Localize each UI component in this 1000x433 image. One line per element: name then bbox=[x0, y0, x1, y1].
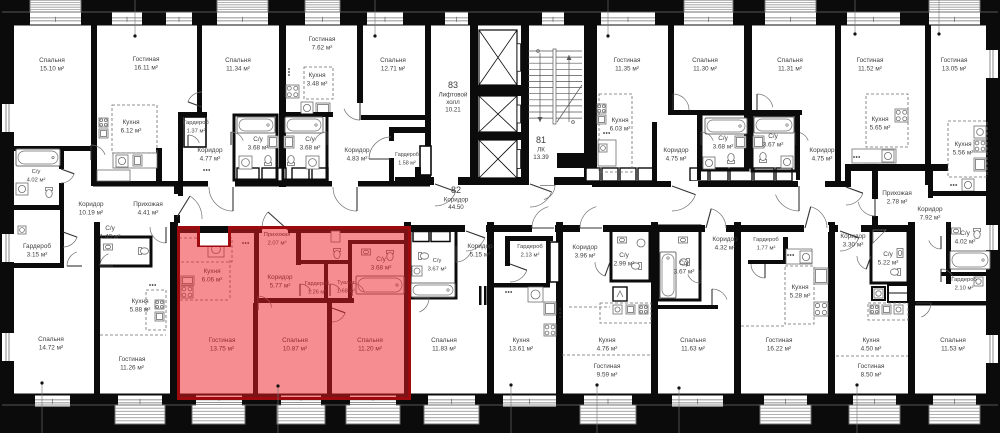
svg-text:1.77 м²: 1.77 м² bbox=[757, 246, 776, 252]
svg-text:1.58 м²: 1.58 м² bbox=[398, 161, 416, 167]
svg-text:Гостиная: Гостиная bbox=[858, 363, 885, 370]
svg-text:83: 83 bbox=[448, 80, 458, 90]
svg-text:Кухня: Кухня bbox=[871, 116, 889, 123]
svg-text:1.37 м²: 1.37 м² bbox=[187, 129, 206, 135]
svg-text:Коридор: Коридор bbox=[344, 147, 370, 154]
svg-text:4.76 м²: 4.76 м² bbox=[597, 346, 618, 353]
svg-text:С/у: С/у bbox=[679, 260, 689, 267]
svg-text:Кухня: Кухня bbox=[122, 119, 140, 126]
svg-text:13.61 м²: 13.61 м² bbox=[509, 346, 533, 353]
svg-text:6.12 м²: 6.12 м² bbox=[121, 128, 142, 135]
svg-text:Коридор: Коридор bbox=[467, 243, 493, 250]
svg-text:11.30 м²: 11.30 м² bbox=[693, 66, 717, 73]
svg-text:11.52 м²: 11.52 м² bbox=[858, 66, 882, 73]
svg-text:Лифтовой: Лифтовой bbox=[439, 92, 468, 99]
svg-text:13.39: 13.39 bbox=[533, 154, 549, 161]
svg-text:3.48 м²: 3.48 м² bbox=[307, 81, 328, 88]
svg-text:3.67 м²: 3.67 м² bbox=[763, 142, 784, 149]
svg-text:С/у: С/у bbox=[433, 258, 442, 264]
svg-text:11.26 м²: 11.26 м² bbox=[120, 365, 144, 372]
svg-text:Спальня: Спальня bbox=[940, 337, 966, 344]
svg-text:Коридор: Коридор bbox=[572, 244, 598, 251]
svg-text:4.32 м²: 4.32 м² bbox=[715, 245, 736, 252]
svg-text:4.77 м²: 4.77 м² bbox=[200, 156, 221, 163]
svg-text:Спальня: Спальня bbox=[680, 337, 706, 344]
svg-text:81: 81 bbox=[536, 135, 546, 145]
svg-text:Гостиная: Гостиная bbox=[119, 356, 146, 363]
svg-text:Кухня: Кухня bbox=[131, 298, 149, 305]
svg-text:ЛК: ЛК bbox=[537, 147, 545, 154]
svg-text:Гардероб: Гардероб bbox=[517, 244, 543, 250]
svg-text:9.59 м²: 9.59 м² bbox=[597, 372, 618, 379]
svg-text:12.71 м²: 12.71 м² bbox=[381, 66, 405, 73]
svg-text:2.13 м²: 2.13 м² bbox=[521, 253, 540, 259]
svg-text:5.56 м²: 5.56 м² bbox=[953, 150, 974, 157]
svg-text:4.75 м²: 4.75 м² bbox=[812, 156, 833, 163]
svg-text:Спальня: Спальня bbox=[380, 57, 406, 64]
svg-text:3.67 м²: 3.67 м² bbox=[674, 269, 695, 276]
svg-text:Коридор: Коридор bbox=[663, 147, 689, 154]
svg-text:14.72 м²: 14.72 м² bbox=[39, 345, 63, 352]
svg-text:Коридор: Коридор bbox=[78, 201, 104, 208]
svg-text:3.68 м²: 3.68 м² bbox=[300, 145, 321, 152]
svg-text:5.65 м²: 5.65 м² bbox=[870, 125, 891, 132]
svg-text:Гардероб: Гардероб bbox=[183, 120, 209, 126]
svg-text:3.68 м²: 3.68 м² bbox=[248, 145, 269, 152]
svg-text:Гостиная: Гостиная bbox=[309, 36, 336, 43]
svg-text:С/у: С/у bbox=[960, 230, 970, 237]
svg-text:С/у: С/у bbox=[619, 252, 629, 259]
svg-text:4.02 м²: 4.02 м² bbox=[955, 239, 976, 246]
svg-text:Спальня: Спальня bbox=[431, 337, 457, 344]
svg-text:Гостиная: Гостиная bbox=[766, 337, 793, 344]
svg-text:Гардероб: Гардероб bbox=[23, 242, 51, 250]
svg-text:7.92 м²: 7.92 м² bbox=[920, 215, 941, 222]
svg-text:4.02 м²: 4.02 м² bbox=[27, 178, 46, 184]
svg-text:3.68 м²: 3.68 м² bbox=[713, 144, 734, 151]
svg-text:3.30 м²: 3.30 м² bbox=[843, 242, 864, 249]
svg-text:Гостиная: Гостиная bbox=[133, 56, 160, 63]
svg-text:Кухня: Кухня bbox=[308, 72, 326, 79]
svg-text:2.99 м²: 2.99 м² bbox=[614, 261, 635, 268]
svg-text:Кухня: Кухня bbox=[791, 284, 809, 291]
svg-text:11.53 м²: 11.53 м² bbox=[941, 346, 965, 353]
svg-text:Прихожая: Прихожая bbox=[882, 190, 912, 197]
svg-text:10.19 м²: 10.19 м² bbox=[79, 210, 103, 217]
svg-text:3.96 м²: 3.96 м² bbox=[575, 253, 596, 260]
svg-text:11.63 м²: 11.63 м² bbox=[681, 346, 705, 353]
svg-text:Прихожая: Прихожая bbox=[133, 201, 163, 208]
svg-text:Гостиная: Гостиная bbox=[614, 57, 641, 64]
svg-text:11.34 м²: 11.34 м² bbox=[226, 66, 250, 73]
svg-text:5.15 м²: 5.15 м² bbox=[470, 252, 491, 259]
svg-text:Спальня: Спальня bbox=[692, 57, 718, 64]
svg-text:Гостиная: Гостиная bbox=[941, 57, 968, 64]
svg-text:Коридор: Коридор bbox=[712, 236, 738, 243]
svg-text:С/у: С/у bbox=[305, 136, 315, 143]
svg-text:2.78 м²: 2.78 м² bbox=[887, 199, 908, 206]
svg-text:Кухня: Кухня bbox=[954, 141, 972, 148]
svg-text:Коридор: Коридор bbox=[809, 147, 835, 154]
svg-text:7.62 м²: 7.62 м² bbox=[312, 45, 333, 52]
svg-text:6.03 м²: 6.03 м² bbox=[610, 126, 631, 133]
svg-text:11.31 м²: 11.31 м² bbox=[778, 66, 802, 73]
svg-text:Гардероб: Гардероб bbox=[951, 277, 977, 283]
svg-text:44.50: 44.50 bbox=[448, 204, 464, 211]
svg-text:Спальня: Спальня bbox=[777, 57, 803, 64]
svg-text:С/у: С/у bbox=[718, 135, 728, 142]
svg-text:4.50 м²: 4.50 м² bbox=[861, 346, 882, 353]
svg-text:Коридор: Коридор bbox=[840, 233, 866, 240]
svg-text:3.15 м²: 3.15 м² bbox=[27, 252, 48, 259]
svg-text:2.10 м²: 2.10 м² bbox=[955, 286, 974, 292]
svg-text:5.28 м²: 5.28 м² bbox=[790, 293, 811, 300]
svg-text:Спальня: Спальня bbox=[38, 336, 64, 343]
svg-text:С/у: С/у bbox=[32, 169, 41, 175]
svg-text:15.10 м²: 15.10 м² bbox=[40, 66, 64, 73]
svg-text:4.75 м²: 4.75 м² bbox=[666, 156, 687, 163]
svg-text:Коридор: Коридор bbox=[197, 147, 223, 154]
svg-text:Кухня: Кухня bbox=[598, 337, 616, 344]
svg-text:Коридор: Коридор bbox=[444, 197, 469, 204]
svg-text:8.50 м²: 8.50 м² bbox=[861, 372, 882, 379]
svg-text:Кухня: Кухня bbox=[611, 117, 629, 124]
svg-text:С/у: С/у bbox=[253, 136, 263, 143]
svg-text:Гардероб: Гардероб bbox=[753, 237, 779, 243]
svg-text:16.11 м²: 16.11 м² bbox=[134, 65, 158, 72]
svg-text:4.41 м²: 4.41 м² bbox=[138, 210, 159, 217]
svg-text:Гардероб: Гардероб bbox=[395, 152, 419, 158]
svg-text:16.22 м²: 16.22 м² bbox=[767, 346, 791, 353]
svg-text:11.83 м²: 11.83 м² bbox=[432, 346, 456, 353]
svg-text:С/у: С/у bbox=[105, 225, 115, 232]
svg-text:10.21: 10.21 bbox=[445, 107, 461, 114]
svg-text:Спальня: Спальня bbox=[225, 57, 251, 64]
svg-text:Спальня: Спальня bbox=[39, 57, 65, 64]
svg-text:5.22 м²: 5.22 м² bbox=[878, 260, 899, 267]
svg-text:13.05 м²: 13.05 м² bbox=[942, 66, 966, 73]
svg-text:82: 82 bbox=[451, 185, 461, 195]
svg-text:Гостиная: Гостиная bbox=[594, 363, 621, 370]
svg-text:С/у: С/у bbox=[883, 251, 893, 258]
svg-text:5.88 м²: 5.88 м² bbox=[130, 307, 151, 314]
svg-text:Кухня: Кухня bbox=[862, 337, 880, 344]
svg-text:Коридор: Коридор bbox=[917, 206, 943, 213]
svg-text:Кухня: Кухня bbox=[512, 337, 530, 344]
svg-text:3.67 м²: 3.67 м² bbox=[428, 267, 447, 273]
svg-text:4.83 м²: 4.83 м² bbox=[347, 156, 368, 163]
svg-text:Гостиная: Гостиная bbox=[857, 57, 884, 64]
svg-text:1.40 м²: 1.40 м² bbox=[100, 234, 121, 241]
svg-text:С/у: С/у bbox=[768, 133, 778, 140]
svg-text:холл: холл bbox=[446, 99, 460, 106]
svg-text:11.35 м²: 11.35 м² bbox=[615, 66, 639, 73]
